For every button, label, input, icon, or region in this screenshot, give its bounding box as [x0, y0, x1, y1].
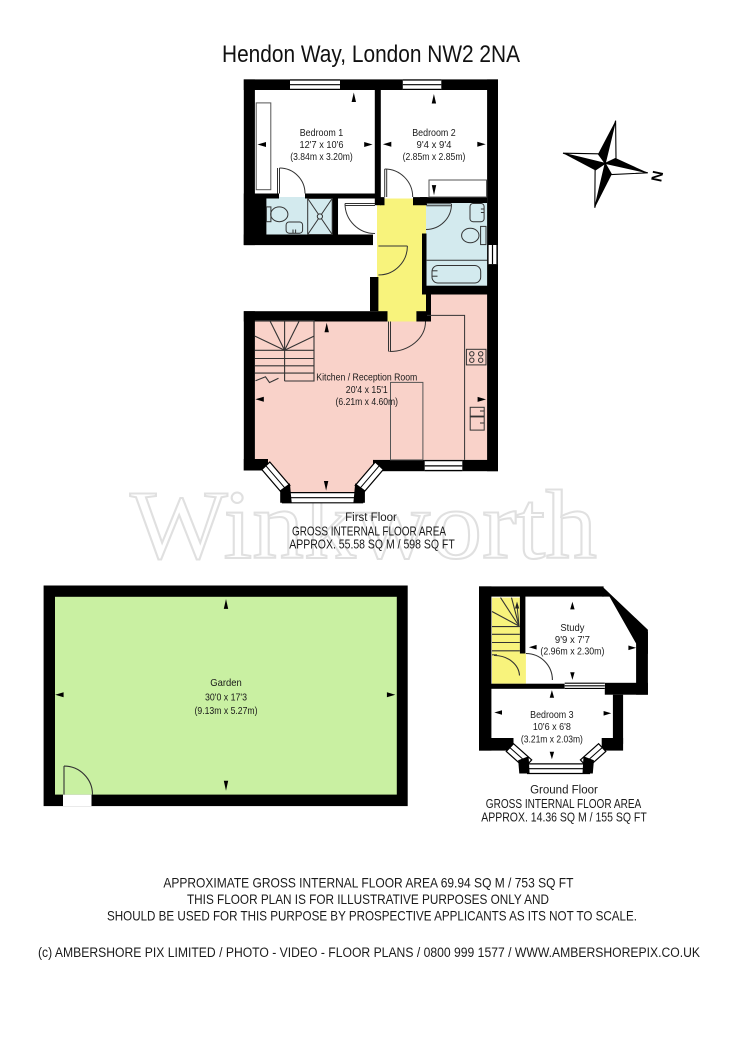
- svg-text:(3.84m x 3.20m): (3.84m x 3.20m): [290, 151, 353, 163]
- svg-text:Study: Study: [560, 622, 585, 634]
- svg-text:Bedroom 1: Bedroom 1: [300, 127, 344, 139]
- svg-text:(2.96m x 2.30m): (2.96m x 2.30m): [540, 646, 604, 658]
- svg-text:30'0 x 17'3: 30'0 x 17'3: [205, 692, 247, 704]
- svg-text:Bedroom 2: Bedroom 2: [412, 127, 456, 139]
- svg-text:SHOULD BE USED FOR THIS PURPOS: SHOULD BE USED FOR THIS PURPOSE BY PROSP…: [107, 908, 637, 924]
- svg-text:APPROXIMATE GROSS INTERNAL FLO: APPROXIMATE GROSS INTERNAL FLOOR AREA 69…: [163, 875, 573, 891]
- svg-text:20'4 x 15'1: 20'4 x 15'1: [346, 384, 388, 396]
- svg-text:9'9 x 7'7: 9'9 x 7'7: [555, 634, 590, 646]
- svg-text:Bedroom 3: Bedroom 3: [530, 709, 574, 721]
- svg-text:THIS FLOOR PLAN IS FOR ILLUSTR: THIS FLOOR PLAN IS FOR ILLUSTRATIVE PURP…: [187, 891, 549, 907]
- svg-text:Garden: Garden: [210, 677, 242, 689]
- svg-text:Ground Floor: Ground Floor: [530, 785, 598, 797]
- svg-text:APPROX. 14.36 SQ M / 155 SQ FT: APPROX. 14.36 SQ M / 155 SQ FT: [481, 809, 647, 824]
- svg-text:12'7 x 10'6: 12'7 x 10'6: [300, 139, 344, 151]
- svg-text:(2.85m x 2.85m): (2.85m x 2.85m): [403, 151, 466, 163]
- svg-text:Hendon Way, London NW2 2NA: Hendon Way, London NW2 2NA: [222, 41, 520, 68]
- svg-text:(3.21m x 2.03m): (3.21m x 2.03m): [521, 733, 583, 745]
- svg-text:9'4 x 9'4: 9'4 x 9'4: [417, 139, 452, 151]
- svg-text:Kitchen / Reception Room: Kitchen / Reception Room: [316, 371, 417, 383]
- svg-text:(9.13m x 5.27m): (9.13m x 5.27m): [195, 705, 258, 717]
- svg-text:(c) AMBERSHORE PIX LIMITED / P: (c) AMBERSHORE PIX LIMITED / PHOTO - VID…: [38, 945, 700, 960]
- svg-text:(6.21m x 4.60m): (6.21m x 4.60m): [336, 396, 399, 408]
- svg-text:APPROX. 55.58 SQ M / 598 SQ FT: APPROX. 55.58 SQ M / 598 SQ FT: [289, 537, 455, 552]
- svg-text:10'6 x 6'8: 10'6 x 6'8: [533, 721, 571, 733]
- svg-text:First Floor: First Floor: [345, 512, 397, 524]
